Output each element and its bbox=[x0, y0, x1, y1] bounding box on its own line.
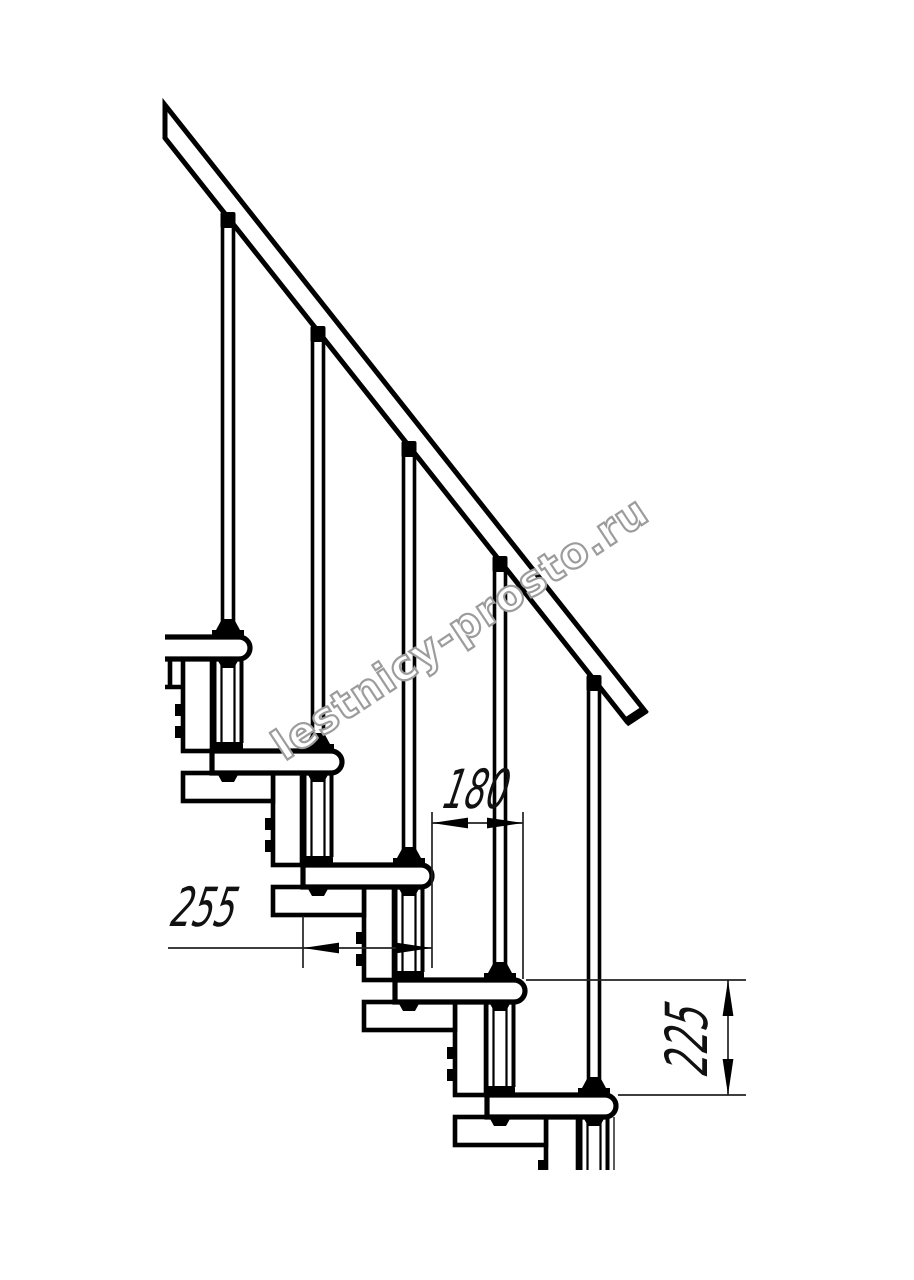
support-column-4 bbox=[455, 1002, 486, 1095]
support-column-3 bbox=[364, 887, 394, 980]
baluster-5 bbox=[589, 682, 600, 1090]
rod-4-outer bbox=[487, 1002, 514, 1087]
support-column-1 bbox=[183, 659, 212, 751]
baluster-1 bbox=[223, 219, 234, 632]
dimension-label-depth: 255 bbox=[167, 881, 242, 935]
support-column-5 bbox=[546, 1117, 578, 1170]
dimension-label-run: 180 bbox=[439, 763, 514, 817]
tread-4 bbox=[395, 980, 525, 1002]
baluster-2 bbox=[313, 333, 324, 746]
tread-3 bbox=[303, 865, 432, 887]
rod-3-outer bbox=[396, 887, 423, 972]
tread-1 bbox=[165, 637, 250, 659]
rod-1-outer bbox=[215, 659, 242, 743]
tread-5 bbox=[487, 1095, 616, 1117]
dimension-label-rise: 225 bbox=[658, 998, 716, 1079]
bracket-box-1 bbox=[165, 659, 183, 687]
rod-2-outer bbox=[305, 773, 332, 857]
support-column-2 bbox=[273, 773, 302, 865]
staircase-drawing-page: 180 255 225 lestnicy-prosto.ru bbox=[0, 0, 914, 1280]
tread-2 bbox=[212, 751, 342, 773]
